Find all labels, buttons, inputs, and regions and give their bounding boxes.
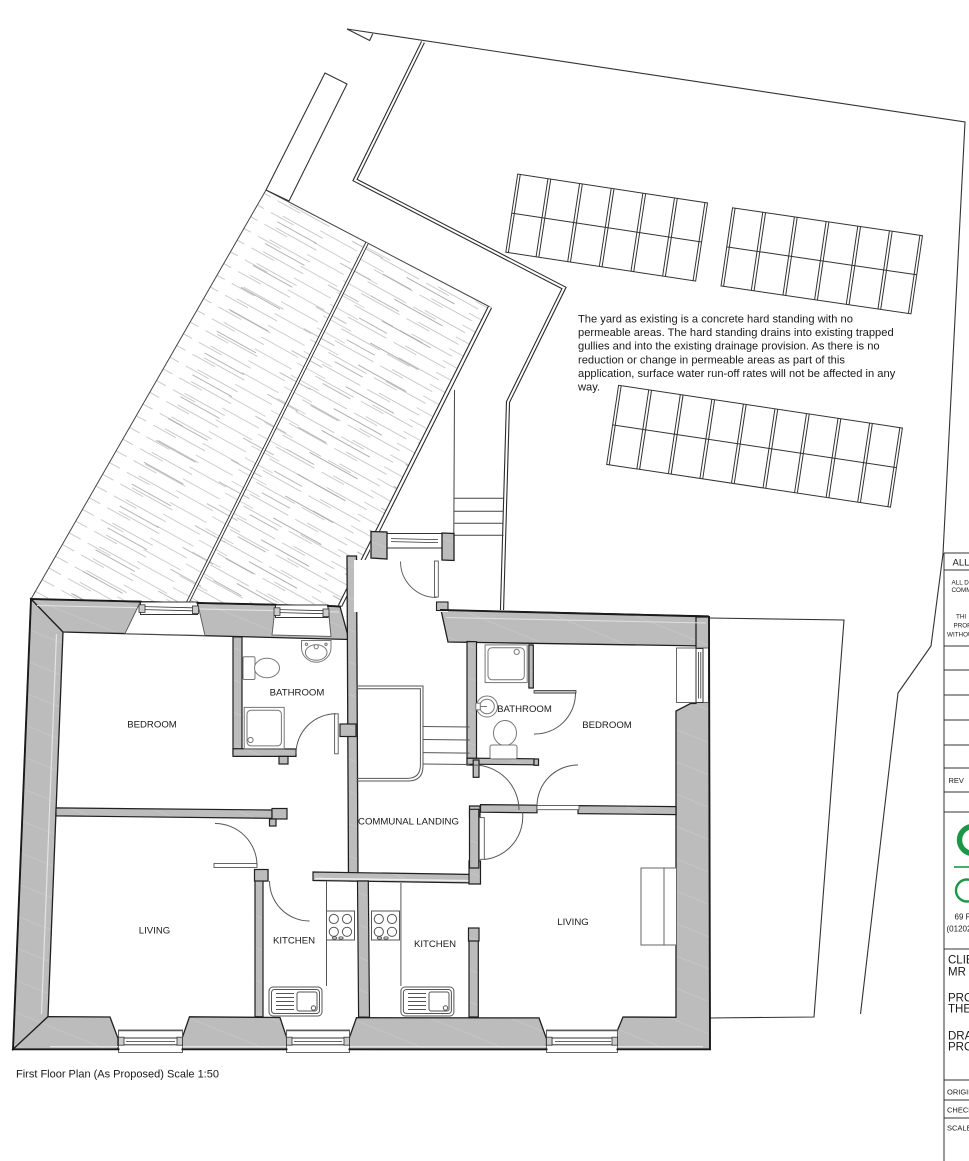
svg-text:LIVING: LIVING [139,926,170,937]
svg-text:THE OLD: THE OLD [948,1004,969,1016]
svg-text:PROP: PROP [954,622,969,629]
svg-text:69 Fa: 69 Fa [955,913,969,922]
svg-text:PROPOSED: PROPOSED [948,1042,969,1054]
svg-text:SCALE: SCALE [947,1124,969,1133]
svg-text:CHECKED: CHECKED [947,1106,969,1115]
svg-text:(01202: (01202 [947,925,969,934]
svg-text:permeable areas. The hard stan: permeable areas. The hard standing drain… [578,327,894,339]
svg-text:KITCHEN: KITCHEN [273,936,315,947]
svg-text:COMMEN: COMMEN [952,587,969,594]
svg-text:MR S: MR S [948,967,969,979]
svg-text:reduction or change in permeab: reduction or change in permeable areas a… [578,354,845,366]
svg-text:way.: way. [577,382,600,394]
svg-text:The yard as existing is a conc: The yard as existing is a concrete hard … [578,314,853,326]
svg-text:application, surface water run: application, surface water run-off rates… [578,368,896,380]
svg-text:BATHROOM: BATHROOM [497,704,552,715]
svg-text:REV: REV [949,776,964,785]
svg-text:ALL DIM: ALL DIM [953,558,969,569]
svg-text:BATHROOM: BATHROOM [270,688,325,699]
svg-text:WITHOU: WITHOU [947,631,969,638]
svg-text:gullies and into the existing: gullies and into the existing drainage p… [578,341,880,353]
svg-text:BEDROOM: BEDROOM [582,720,632,731]
svg-text:First Floor Plan (As Proposed): First Floor Plan (As Proposed) Scale 1:5… [16,1069,219,1081]
svg-text:THI: THI [956,614,966,621]
svg-text:ALL DRAWI: ALL DRAWI [952,580,969,587]
svg-text:KITCHEN: KITCHEN [414,939,456,950]
svg-text:ORIGINAL: ORIGINAL [947,1088,969,1097]
svg-text:COMMUNAL LANDING: COMMUNAL LANDING [358,817,459,828]
svg-text:CLIENT:: CLIENT: [948,955,969,967]
svg-text:BEDROOM: BEDROOM [127,720,177,731]
svg-text:LIVING: LIVING [557,917,588,928]
